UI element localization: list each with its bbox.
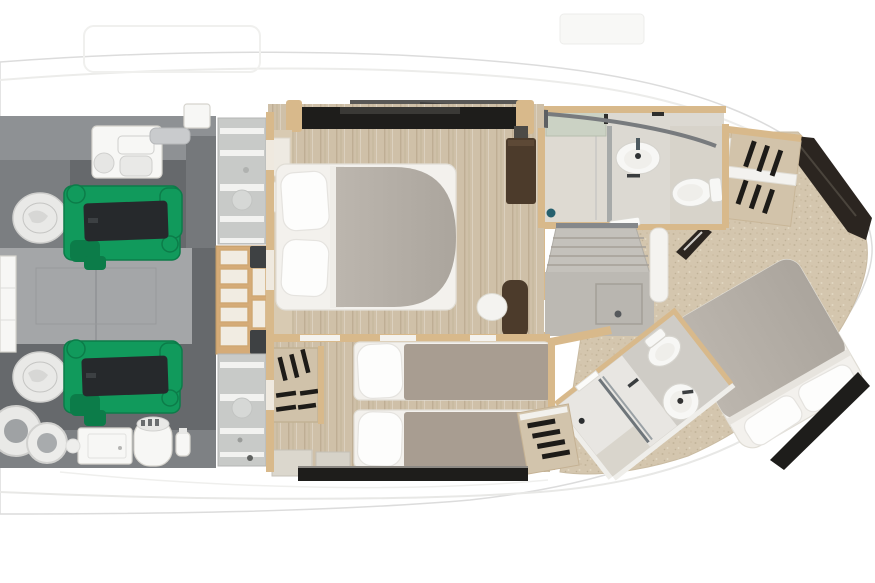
shower-glass-divider — [607, 126, 612, 226]
ring-tank-2 — [27, 423, 67, 463]
head-wall-right — [722, 124, 729, 228]
deck-box — [184, 104, 210, 128]
engine-room — [0, 104, 216, 468]
equipment-slab — [186, 136, 216, 248]
vip-wall-right — [538, 128, 545, 228]
engine-starboard — [64, 340, 182, 426]
hatch-pull — [615, 311, 622, 318]
tall-cabinet — [506, 138, 536, 204]
striped-locker-bottom — [218, 354, 266, 466]
twin-wardrobe — [272, 348, 318, 422]
vip-duvet — [336, 167, 456, 307]
stool — [477, 294, 507, 321]
toilet-tank — [709, 177, 723, 202]
towel-rail — [627, 174, 640, 178]
shower-floor — [542, 130, 608, 222]
curved-wall — [650, 228, 668, 302]
small-tank — [176, 428, 190, 456]
engine-port — [64, 185, 182, 270]
guest-twin-cabin — [268, 338, 579, 481]
hull-window-strip-twin — [298, 468, 528, 481]
wardrobe-divider — [318, 346, 324, 424]
pod-drive-starboard — [13, 352, 67, 402]
duct — [150, 128, 190, 144]
wood-shelf-steps — [216, 246, 270, 354]
striped-locker-top — [218, 118, 266, 244]
faucet — [636, 138, 640, 150]
staircase — [546, 228, 650, 274]
vip-pillow-bottom — [281, 239, 330, 297]
water-heater-cylinder — [134, 417, 172, 466]
bulkhead-lockers — [216, 112, 274, 472]
floor-hatch — [596, 284, 642, 324]
forward-vip-cabin — [268, 100, 550, 342]
twin-bed-1 — [354, 342, 550, 400]
yacht-floor-plan — [0, 0, 875, 583]
twin-duvet-1 — [404, 344, 550, 400]
vip-pillow-top — [280, 170, 330, 231]
side-cabinet — [0, 256, 16, 352]
deck-hatch-faint — [560, 14, 644, 44]
twin-pillow-2 — [357, 411, 403, 467]
hanging-locker — [517, 404, 579, 474]
shower-drain — [547, 209, 556, 218]
window-post-left — [286, 100, 302, 132]
stairwell-edge — [556, 223, 638, 228]
pod-drive-port — [13, 193, 67, 243]
head-wall-top — [540, 106, 726, 113]
twin-pillow-1 — [357, 343, 404, 399]
vip-bed — [276, 164, 456, 310]
floor-plan-canvas — [0, 0, 875, 583]
